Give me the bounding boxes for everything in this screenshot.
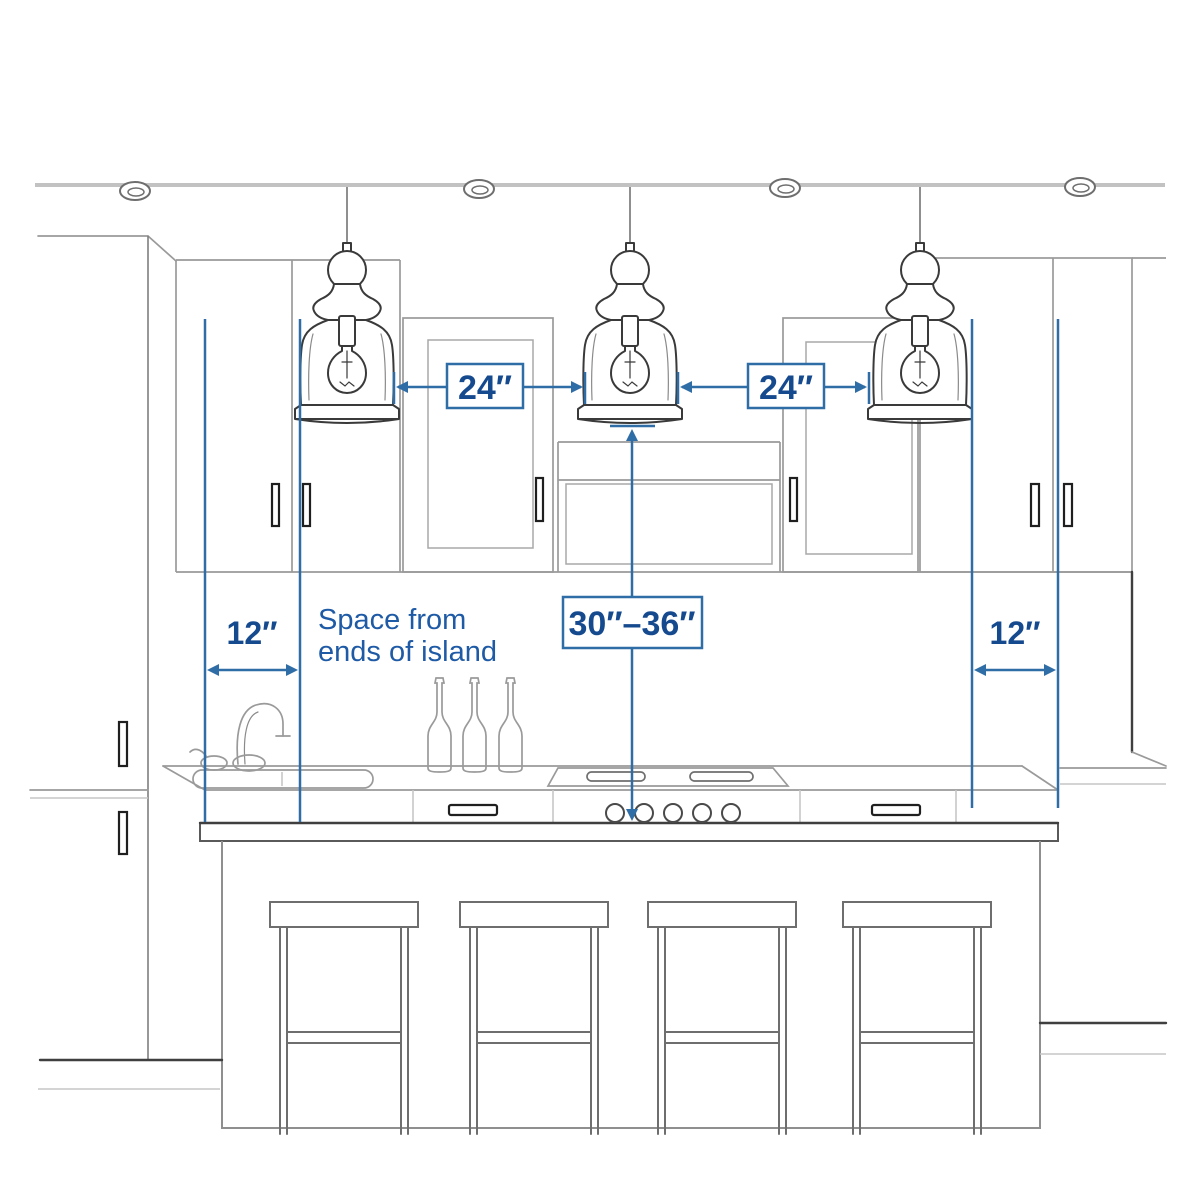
arrowhead-left-icon	[207, 664, 219, 676]
cabinet-handle	[119, 812, 127, 854]
drawer-handle	[872, 805, 920, 815]
burner-grate	[690, 772, 753, 781]
drawer-handle	[449, 805, 497, 815]
island-countertop	[163, 766, 1058, 841]
dimension-label-12-left: 12″	[227, 615, 278, 651]
cooktop	[548, 768, 788, 822]
arrowhead-left-icon	[974, 664, 986, 676]
dimension-island-end-right: 12″	[974, 615, 1056, 676]
arrowhead-right-icon	[1044, 664, 1056, 676]
cabinet-handle	[1031, 484, 1039, 526]
bottle-icon	[499, 678, 522, 772]
recessed-light-icon	[1065, 178, 1095, 196]
dimension-island-end-left: 12″	[207, 615, 298, 676]
note-line-1: Space from	[318, 604, 466, 636]
base-cabinets-left	[30, 722, 148, 854]
cooktop-knobs	[606, 804, 740, 822]
arrowhead-right-icon	[855, 381, 867, 393]
arrowhead-left-icon	[396, 381, 408, 393]
upper-cabinet-panel-left	[403, 318, 553, 572]
cabinet-handle	[536, 478, 543, 521]
dimension-label-12-right: 12″	[990, 615, 1041, 651]
bar-stool-4	[843, 902, 991, 1134]
bar-stool-3	[648, 902, 796, 1134]
floor-lines	[38, 1023, 1166, 1089]
arrowhead-up-icon	[626, 429, 638, 441]
diagram-canvas: 24″ 24″ 12″ 12″	[0, 0, 1200, 1200]
bottle-icon	[428, 678, 451, 772]
recessed-lights	[120, 178, 1095, 200]
bar-stool-1	[270, 902, 418, 1134]
range-hood-alcove	[558, 442, 780, 572]
countertop-slab	[200, 823, 1058, 841]
kitchen-pendant-spacing-diagram: 24″ 24″ 12″ 12″	[0, 0, 1200, 1200]
arrowhead-right-icon	[571, 381, 583, 393]
bottle-icon	[463, 678, 486, 772]
arrowhead-left-icon	[680, 381, 692, 393]
pendant-light-2	[578, 187, 682, 423]
dimension-pendant-gap-right: 24″	[680, 364, 867, 408]
sink	[193, 770, 373, 788]
left-wall	[38, 236, 176, 1060]
cabinet-handle	[303, 484, 310, 526]
recessed-light-icon	[464, 180, 494, 198]
note-line-2: ends of island	[318, 636, 497, 668]
cabinet-handle	[272, 484, 279, 526]
recessed-light-icon	[770, 179, 800, 197]
burner-grate	[587, 772, 645, 781]
island-end-note: Space from ends of island	[318, 604, 497, 668]
pendant-light-3	[868, 187, 972, 423]
kitchen-island	[222, 841, 1040, 1128]
dimension-pendant-height: 30″–36″	[563, 426, 702, 821]
dimension-label-24-left: 24″	[458, 369, 512, 407]
arrowhead-right-icon	[286, 664, 298, 676]
dimension-label-24-right: 24″	[759, 369, 813, 407]
right-wall	[1060, 572, 1166, 784]
cabinet-handle	[119, 722, 127, 766]
dimension-pendant-gap-left: 24″	[396, 364, 583, 408]
cabinet-handle	[1064, 484, 1072, 526]
cabinet-handle	[790, 478, 797, 521]
wine-bottles	[428, 678, 522, 772]
pendant-light-1	[295, 187, 399, 423]
dimension-label-30-36: 30″–36″	[568, 605, 695, 643]
recessed-light-icon	[120, 182, 150, 200]
bar-stool-2	[460, 902, 608, 1134]
